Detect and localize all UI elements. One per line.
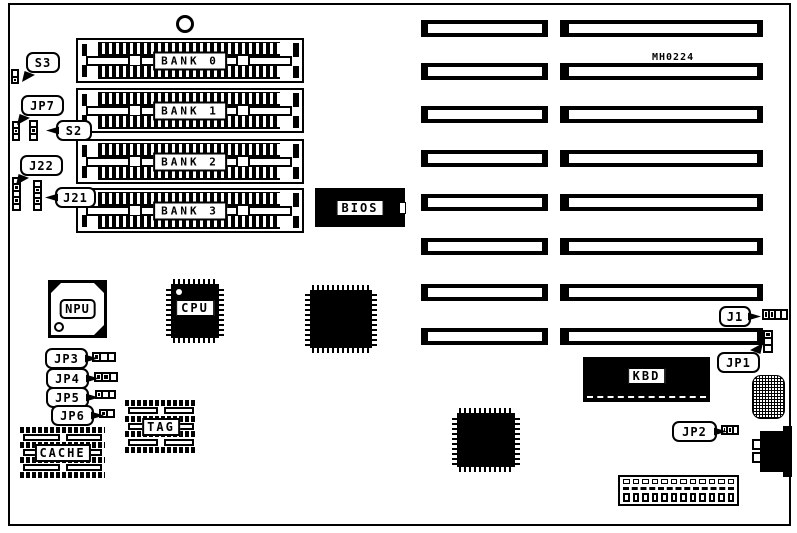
cpu-body: CPU — [171, 284, 219, 338]
callout-j1: J1 — [719, 306, 751, 327]
cache-chips: CACHE — [20, 427, 105, 478]
socket-corner — [51, 283, 61, 293]
callout-j1-label: J1 — [727, 310, 743, 324]
callout-s2-label: S2 — [66, 124, 82, 138]
board-code: MH0224 — [652, 52, 694, 63]
isa-slot — [421, 20, 548, 37]
edge-connector-step — [783, 426, 792, 477]
motherboard-diagram: MH0224 BANK 0 BANK 1 BANK 2 BANK 3 BIOS — [0, 0, 797, 533]
chip-notch — [399, 202, 406, 214]
chip-pin-stripe — [587, 396, 706, 398]
pin1-marker — [54, 322, 64, 332]
callout-jp4: JP4 — [46, 368, 89, 389]
isa-slot — [421, 284, 548, 301]
j21-connector — [33, 180, 42, 211]
isa-slot — [421, 238, 548, 255]
isa-slot — [421, 150, 548, 167]
bios-chip: BIOS — [315, 188, 405, 227]
callout-jp4-label: JP4 — [55, 372, 80, 386]
mounting-hole — [176, 15, 194, 33]
tag-label: TAG — [142, 418, 180, 436]
callout-jp3: JP3 — [45, 348, 88, 369]
isa-slot — [560, 150, 763, 167]
power-connector — [618, 475, 739, 506]
callout-jp1-label: JP1 — [726, 356, 751, 370]
npu-socket: NPU — [48, 280, 107, 338]
jp3-jumper — [92, 352, 116, 362]
cache-label: CACHE — [34, 444, 90, 462]
isa-slot — [560, 328, 763, 345]
callout-s2: S2 — [56, 120, 92, 141]
isa-slot — [560, 106, 763, 123]
callout-jp6-label: JP6 — [60, 409, 85, 423]
edge-connector-pin — [752, 439, 762, 450]
callout-s3: S3 — [26, 52, 60, 73]
power-divider — [623, 487, 734, 490]
callout-jp7-label: JP7 — [30, 99, 55, 113]
callout-jp5-label: JP5 — [55, 391, 80, 405]
jp1-jumper — [763, 330, 773, 353]
socket-corner — [94, 283, 104, 293]
callout-j21: J21 — [55, 187, 96, 208]
isa-slot — [421, 106, 548, 123]
chipset-qfp-2 — [452, 408, 520, 472]
simm-bank-3: BANK 3 — [76, 188, 304, 233]
bios-label: BIOS — [337, 200, 384, 216]
callout-j22-label: J22 — [29, 159, 54, 173]
edge-connector-pin — [752, 452, 762, 463]
power-tabs-row — [623, 479, 734, 484]
isa-slot — [560, 194, 763, 211]
cpu-label: CPU — [176, 300, 214, 316]
bank-3-label: BANK 3 — [153, 201, 227, 220]
j1-jumper — [762, 309, 788, 320]
chipset-qfp-1 — [305, 285, 377, 353]
bank-2-label: BANK 2 — [153, 152, 227, 171]
jp6-jumper — [99, 409, 115, 418]
pin1-dot — [176, 289, 182, 295]
npu-label: NPU — [59, 299, 96, 319]
tag-chips: TAG — [125, 400, 197, 453]
keyboard-din-connector — [752, 375, 785, 419]
s2-jumper — [29, 120, 38, 141]
socket-corner — [94, 325, 104, 335]
callout-jp2-label: JP2 — [682, 425, 707, 439]
callout-j21-label: J21 — [63, 191, 88, 205]
isa-slot — [560, 238, 763, 255]
simm-bank-0: BANK 0 — [76, 38, 304, 83]
callout-s3-label: S3 — [35, 56, 51, 70]
bank-0-label: BANK 0 — [153, 51, 227, 70]
callout-jp2: JP2 — [672, 421, 717, 442]
cpu-chip: CPU — [166, 279, 224, 343]
callout-jp7: JP7 — [21, 95, 64, 116]
kbd-chip: KBD — [583, 357, 710, 402]
simm-bank-2: BANK 2 — [76, 139, 304, 184]
jp2-jumper — [721, 425, 739, 435]
power-pins-row — [623, 493, 734, 502]
jp4-jumper — [94, 372, 118, 382]
isa-slot — [560, 20, 763, 37]
simm-bank-1: BANK 1 — [76, 88, 304, 133]
callout-jp1: JP1 — [717, 352, 760, 373]
callout-jp6: JP6 — [51, 405, 94, 426]
isa-slot — [560, 63, 763, 80]
isa-slot — [421, 328, 548, 345]
s3-jumper — [11, 69, 19, 84]
isa-slot — [421, 63, 548, 80]
callout-jp3-label: JP3 — [54, 352, 79, 366]
kbd-label: KBD — [628, 368, 666, 384]
callout-j22: J22 — [20, 155, 63, 176]
isa-slot — [560, 284, 763, 301]
bank-1-label: BANK 1 — [153, 101, 227, 120]
isa-slot — [421, 194, 548, 211]
